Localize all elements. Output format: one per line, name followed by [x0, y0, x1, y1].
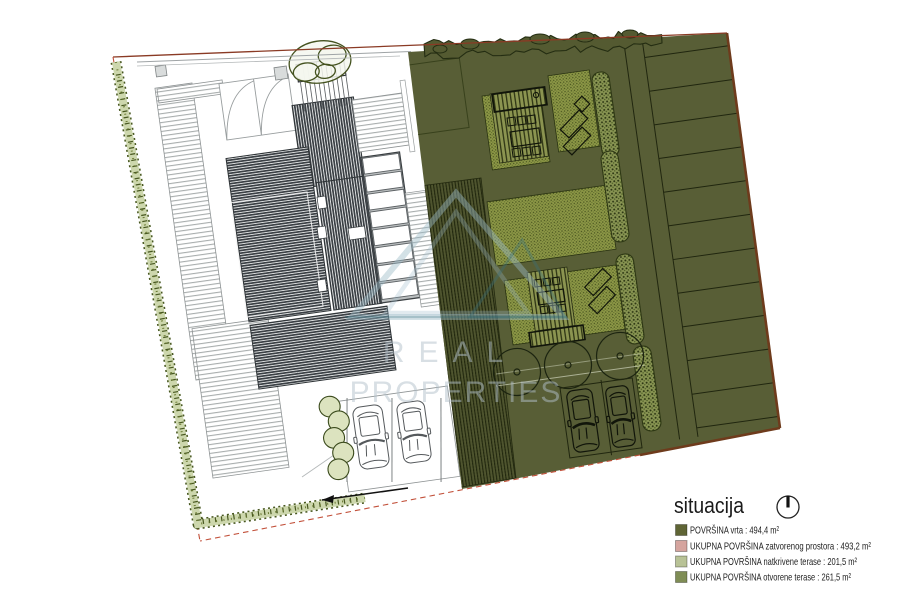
svg-text:UKUPNA POVRŠINA natkrivene ter: UKUPNA POVRŠINA natkrivene terase : 201,…: [690, 555, 857, 568]
svg-text:POVRŠINA vrta : 494,4 m²: POVRŠINA vrta : 494,4 m²: [690, 524, 779, 537]
svg-text:REAL: REAL: [383, 336, 517, 369]
svg-text:situacija: situacija: [674, 493, 745, 518]
svg-text:UKUPNA POVRŠINA zatvorenog pro: UKUPNA POVRŠINA zatvorenog prostora : 49…: [690, 540, 871, 553]
svg-text:PROPERTIES: PROPERTIES: [350, 376, 563, 409]
svg-text:UKUPNA POVRŠINA otvorene teras: UKUPNA POVRŠINA otvorene terase : 261,5 …: [690, 571, 851, 584]
